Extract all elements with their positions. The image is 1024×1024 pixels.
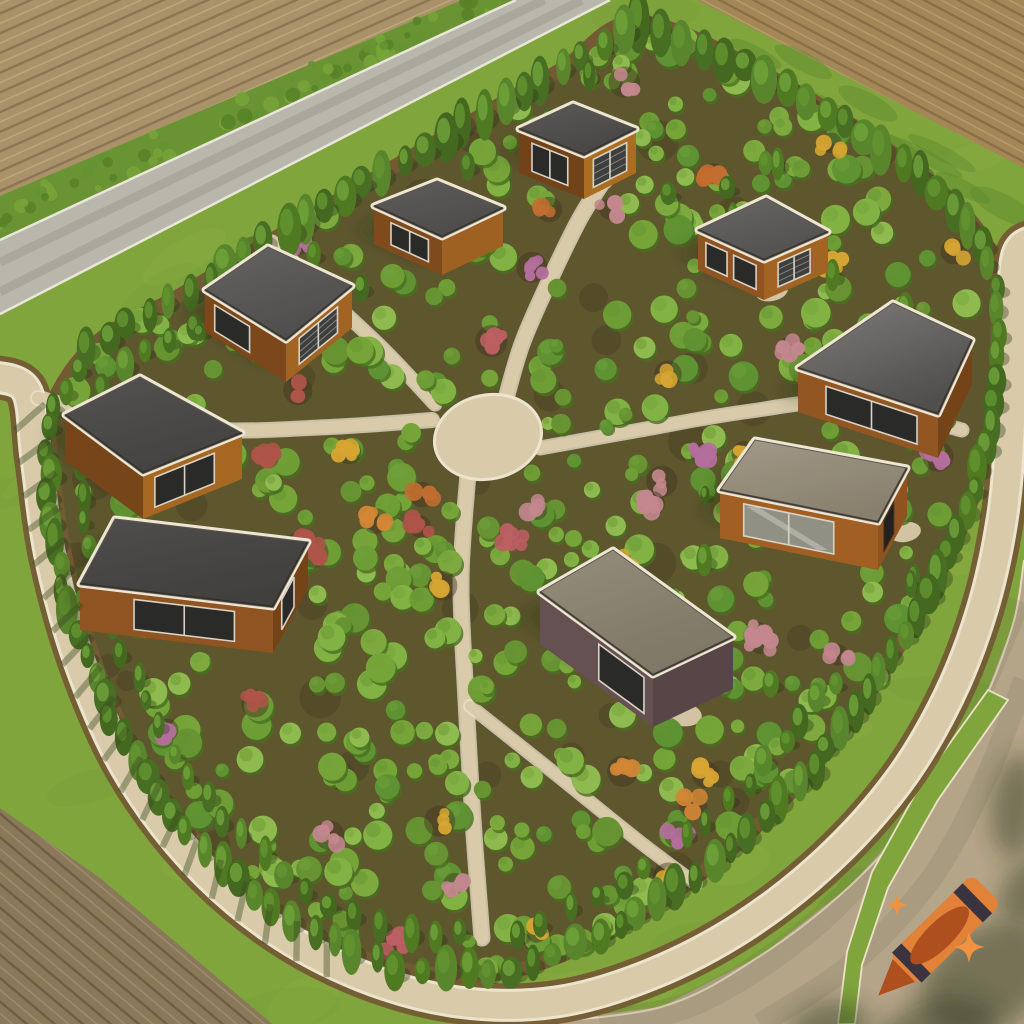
aerial-photo <box>0 0 1024 1024</box>
photo-tint <box>0 0 1024 1024</box>
aerial-scene <box>0 0 1024 1024</box>
